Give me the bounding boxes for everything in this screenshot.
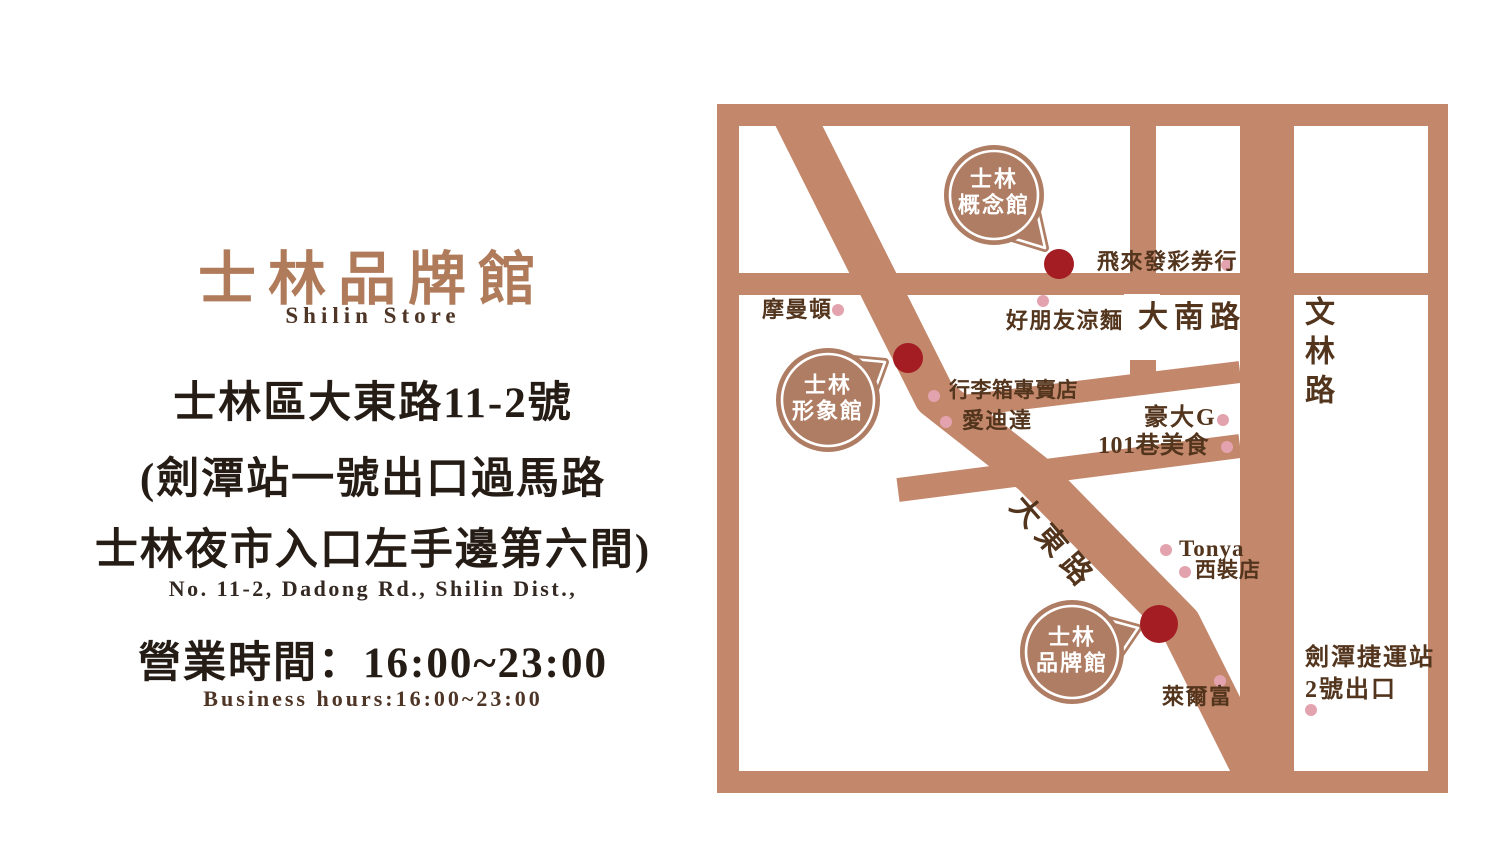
poi-dot-momandun xyxy=(832,304,844,316)
poi-label-momandun: 摩曼頓 xyxy=(762,299,833,321)
poi-dot-tonya xyxy=(1160,544,1172,556)
bubble-line1: 士林 xyxy=(1036,625,1108,651)
poi-dot-haoda xyxy=(1217,414,1229,426)
poi-dot-suits xyxy=(1179,566,1191,578)
poi-dot-adidas xyxy=(940,416,952,428)
poi-label-mrt-station: 劍潭捷運站 xyxy=(1305,646,1435,670)
street-label-wenlin: 文林路 xyxy=(1301,296,1331,413)
bubble-line1: 士林 xyxy=(958,167,1030,193)
poi-dot-mrt-exit xyxy=(1305,704,1317,716)
info-panel: 士林品牌館 Shilin Store 士林區大東路11-2號 (劍潭站一號出口過… xyxy=(10,0,736,847)
street-map: 士林 概念館 士林 形象館 士林 品牌館 大南路 文林路 大東路 飛來發彩券行 … xyxy=(717,104,1448,793)
store-dot-brand xyxy=(1140,605,1178,643)
store-info-card: 士林品牌館 Shilin Store 士林區大東路11-2號 (劍潭站一號出口過… xyxy=(0,0,1512,847)
poi-label-noodles: 好朋友涼麵 xyxy=(1006,310,1124,332)
bubble-line2: 概念館 xyxy=(958,193,1030,219)
bubble-line2: 品牌館 xyxy=(1036,651,1108,677)
address-english: No. 11-2, Dadong Rd., Shilin Dist., xyxy=(10,576,736,602)
bubble-label-concept: 士林 概念館 xyxy=(958,167,1030,220)
street-label-danan: 大南路 xyxy=(1138,303,1246,333)
bubble-label-image: 士林 形象館 xyxy=(792,373,864,426)
poi-dot-noodles xyxy=(1037,295,1049,307)
store-dot-image xyxy=(893,343,923,373)
poi-label-mrt-exit: 2號出口 xyxy=(1305,678,1397,702)
store-dot-concept xyxy=(1044,249,1074,279)
poi-label-lottery: 飛來發彩券行 xyxy=(1097,251,1238,273)
bubble-line2: 形象館 xyxy=(792,399,864,425)
business-hours-en: Business hours:16:00~23:00 xyxy=(10,686,736,712)
poi-dot-101food xyxy=(1221,441,1233,453)
poi-label-haoda: 豪大G xyxy=(1144,406,1217,430)
poi-label-laierfu: 萊爾富 xyxy=(1162,686,1233,708)
poi-label-suits: 西裝店 xyxy=(1195,560,1261,581)
address-line-2: (劍潭站一號出口過馬路 xyxy=(10,444,736,506)
poi-label-101food: 101巷美食 xyxy=(1098,434,1209,458)
poi-label-tonya: Tonya xyxy=(1179,537,1245,560)
poi-label-luggage: 行李箱專賣店 xyxy=(949,380,1078,401)
business-hours: 營業時間：16:00~23:00 xyxy=(10,628,736,690)
address-line-1: 士林區大東路11-2號 xyxy=(10,368,736,430)
address-line-3: 士林夜市入口左手邊第六間) xyxy=(10,515,736,577)
bubble-line1: 士林 xyxy=(792,373,864,399)
bubble-label-brand: 士林 品牌館 xyxy=(1036,625,1108,678)
store-title-en: Shilin Store xyxy=(10,303,736,329)
poi-dot-luggage xyxy=(928,390,940,402)
poi-label-adidas: 愛迪達 xyxy=(962,410,1033,432)
